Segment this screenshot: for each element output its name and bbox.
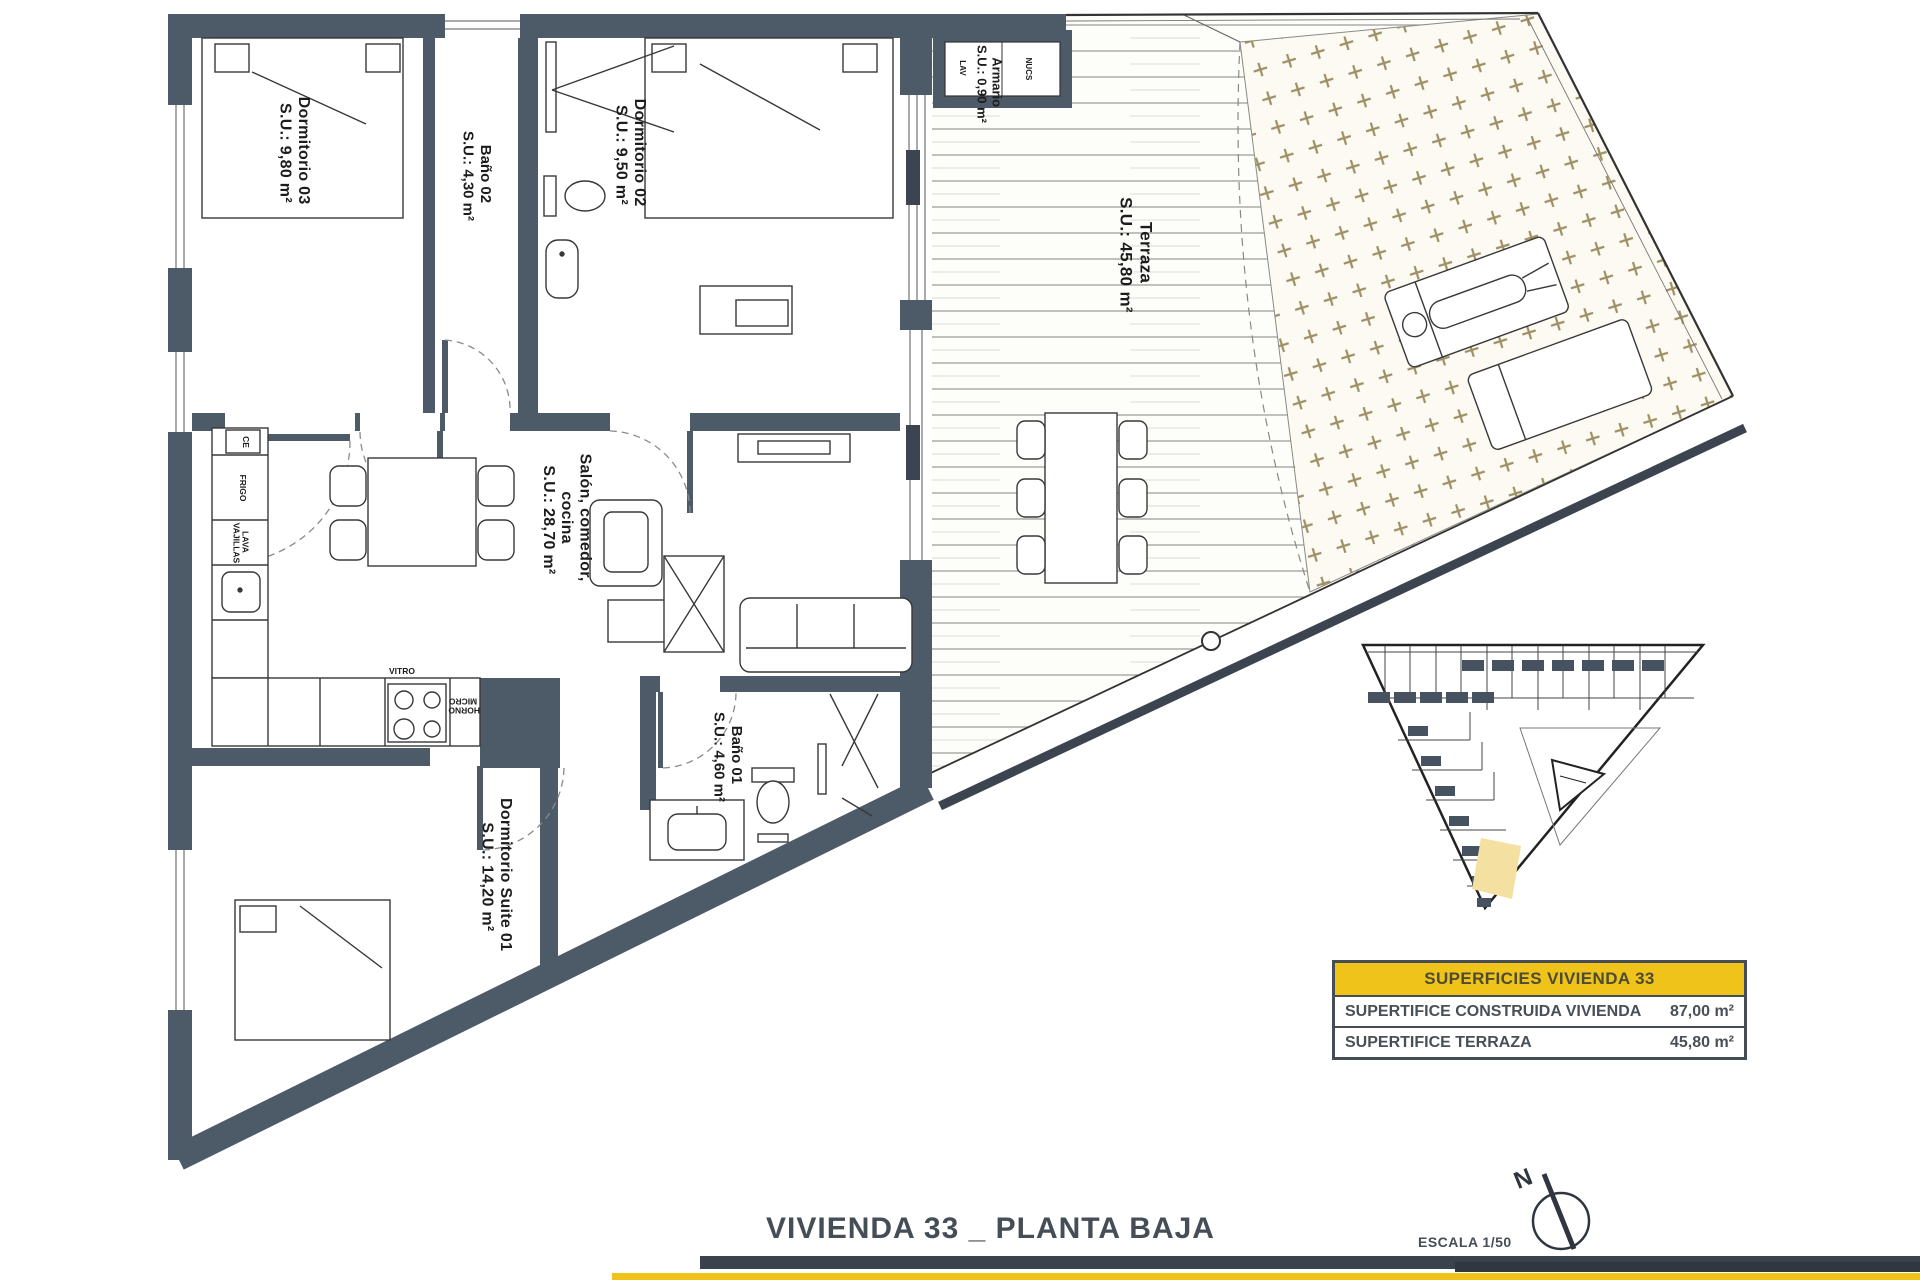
summary-row-value: 87,00 m² [1670, 1003, 1734, 1021]
room-label-bano-02: Baño 02 S.U.: 4,30 m² [460, 131, 494, 221]
table-row: SUPERTIFICE TERRAZA 45,80 m² [1335, 1026, 1744, 1057]
label-lav: LAV [958, 60, 967, 76]
terrace-table-icon [1017, 413, 1147, 583]
label-ce: CE [241, 436, 251, 448]
summary-table: SUPERFICIES VIVIENDA 33 SUPERTIFICE CONS… [1332, 960, 1747, 1060]
label-vitro: VITRO [389, 666, 415, 676]
footer-bar-dark-step [1455, 1262, 1920, 1272]
room-label-suite-01: Dormitorio Suite 01 S.U.: 14,20 m² [479, 798, 514, 956]
label-nucs: NUCS [1024, 58, 1033, 81]
sofa-icon [740, 598, 912, 672]
dining-table-icon [330, 458, 514, 566]
room-label-salon: Salón, comedor, cocina S.U.: 28,70 m² [540, 454, 594, 587]
shower-icon [818, 694, 878, 816]
armchair-icon [590, 500, 662, 586]
cooktop-icon [388, 684, 446, 742]
label-horno-micro: HORNO MICRO [446, 696, 480, 715]
summary-row-label: SUPERTIFICE CONSTRUIDA VIVIENDA [1345, 1003, 1641, 1021]
north-label: N [1510, 1163, 1536, 1195]
coffee-table-icon [608, 600, 666, 642]
floor-plan-svg: Dormitorio 03 S.U.: 9,80 m² Baño 02 S.U.… [0, 0, 1920, 1280]
footer-bar-yellow [612, 1273, 1920, 1280]
bed-icon [645, 38, 893, 334]
page-title: VIVIENDA 33 _ PLANTA BAJA [766, 1212, 1215, 1246]
toilet-icon [544, 176, 605, 216]
scale-label: ESCALA 1/50 [1418, 1234, 1512, 1250]
floorplan-canvas: Dormitorio 03 S.U.: 9,80 m² Baño 02 S.U.… [0, 0, 1920, 1280]
closet-icon [664, 556, 724, 652]
tv-unit-icon [738, 434, 850, 462]
summary-table-header: SUPERFICIES VIVIENDA 33 [1335, 963, 1744, 997]
room-label-bano-01: Baño 01 S.U.: 4,60 m² [711, 712, 745, 802]
sink-icon [546, 240, 578, 298]
toilet-icon [752, 768, 794, 842]
label-frigo: FRIGO [238, 475, 248, 502]
north-arrow: N [1510, 1163, 1589, 1249]
room-label-dormitorio-02: Dormitorio 02 S.U.: 9,50 m² [613, 99, 648, 212]
sink-icon [650, 800, 744, 860]
room-label-dormitorio-03: Dormitorio 03 S.U.: 9,80 m² [277, 97, 312, 210]
summary-row-label: SUPERTIFICE TERRAZA [1345, 1034, 1532, 1052]
summary-row-value: 45,80 m² [1670, 1034, 1734, 1052]
boundary-marker-circle [1202, 632, 1220, 650]
bed-icon [235, 900, 390, 1040]
table-row: SUPERTIFICE CONSTRUIDA VIVIENDA 87,00 m² [1335, 997, 1744, 1026]
keyplan [1363, 645, 1703, 908]
